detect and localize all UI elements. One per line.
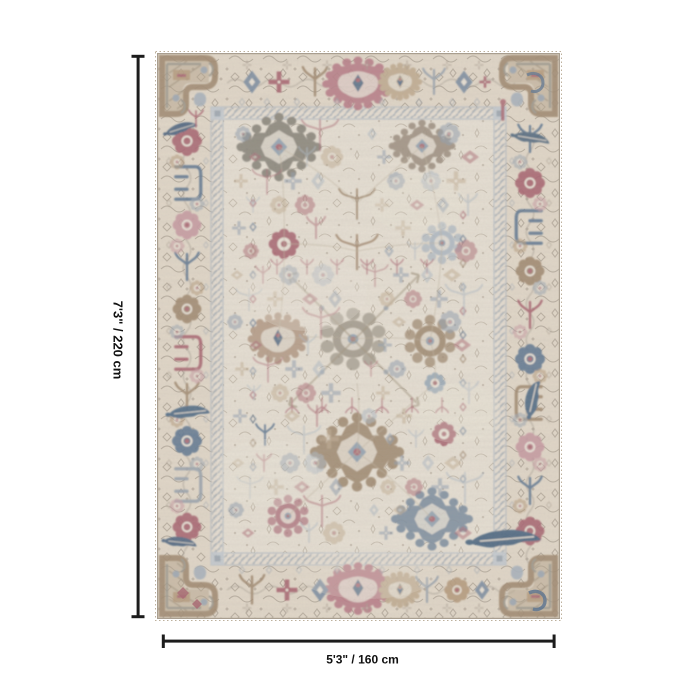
svg-text:7'3" / 220 cm: 7'3" / 220 cm [111, 301, 126, 380]
svg-text:5'3" / 160 cm: 5'3" / 160 cm [326, 653, 399, 667]
